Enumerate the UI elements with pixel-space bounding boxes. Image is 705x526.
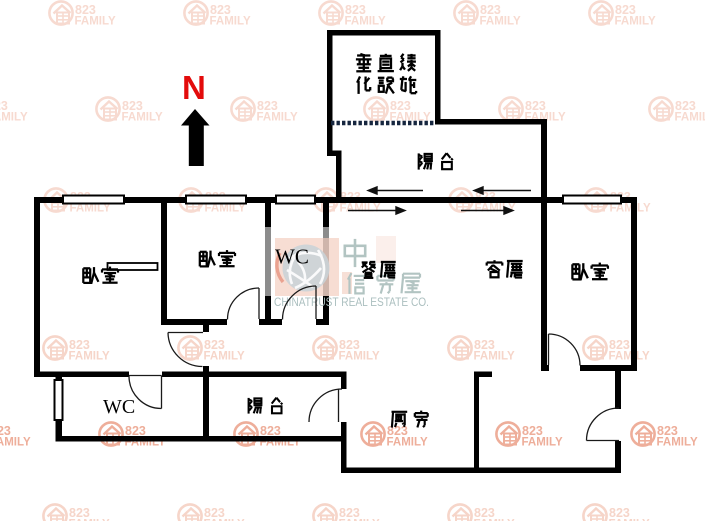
svg-text:WC: WC	[103, 396, 135, 418]
svg-text:WC: WC	[275, 245, 309, 269]
svg-text:N: N	[182, 69, 206, 106]
svg-text:CHINATRUST REAL ESTATE CO.: CHINATRUST REAL ESTATE CO.	[274, 295, 429, 309]
